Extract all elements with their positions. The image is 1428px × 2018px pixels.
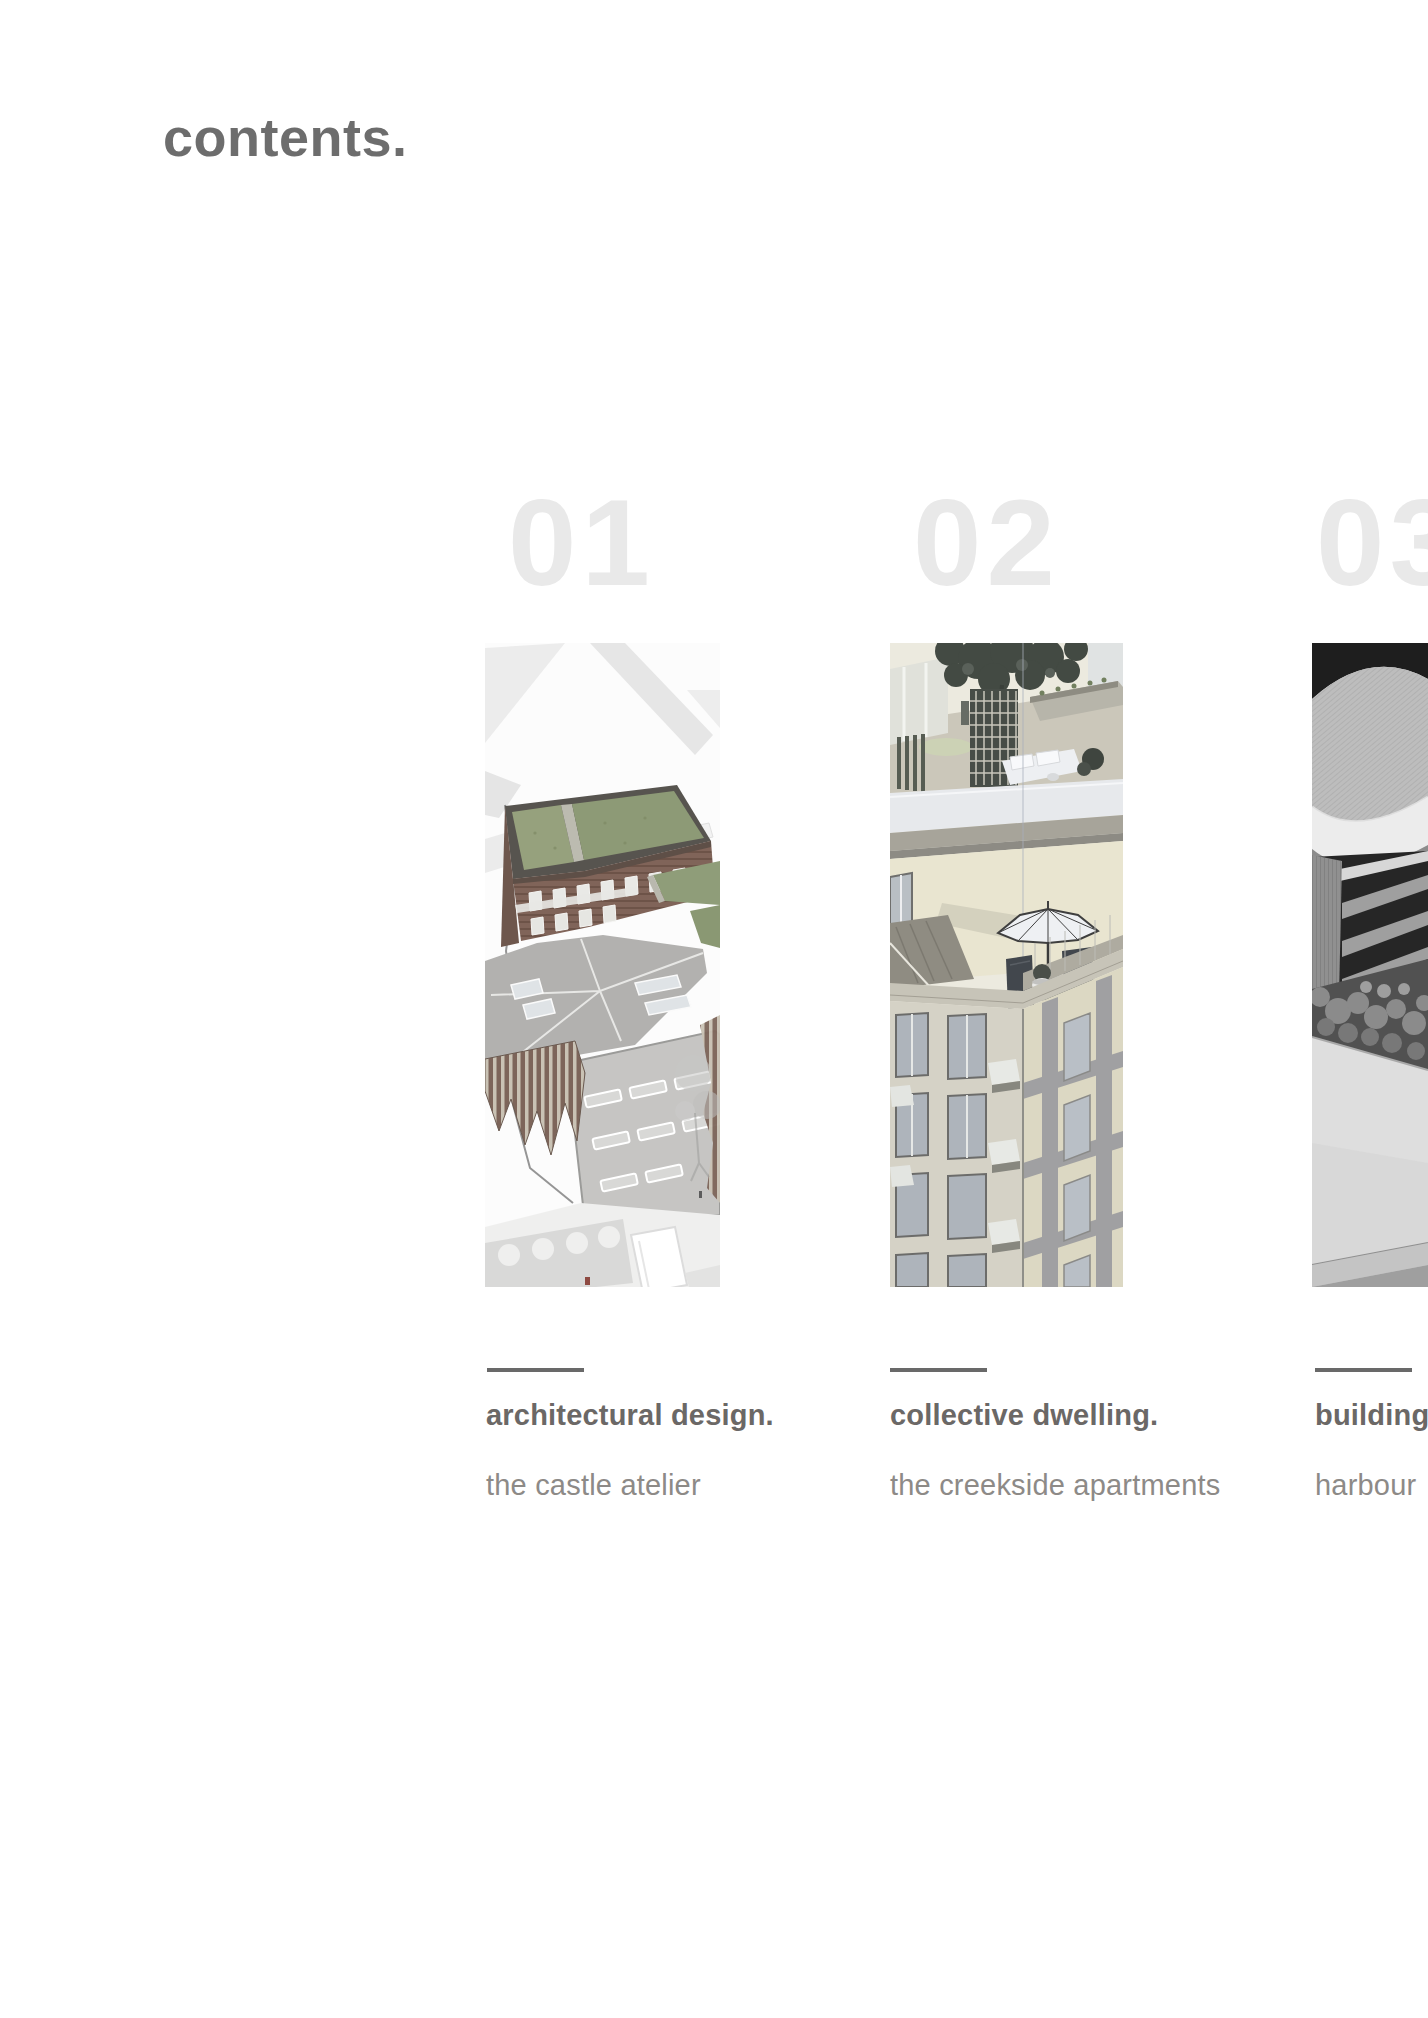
project-subtitle: the castle atelier (486, 1469, 701, 1502)
section-number-03: 03 (1316, 481, 1428, 604)
page-title: contents. (163, 110, 408, 164)
castle-atelier-render-image (485, 643, 720, 1287)
project-thumbnail-2 (890, 643, 1123, 1287)
project-title: building (1315, 1399, 1428, 1432)
harbour-model-photo-image (1312, 643, 1428, 1287)
project-title: collective dwelling. (890, 1399, 1158, 1432)
divider-line (1315, 1368, 1412, 1372)
section-number-01: 01 (508, 481, 655, 604)
section-number-02: 02 (913, 481, 1060, 604)
divider-line (487, 1368, 584, 1372)
creekside-apartments-render-image (890, 643, 1123, 1287)
divider-line (890, 1368, 987, 1372)
project-title: architectural design. (486, 1399, 774, 1432)
project-thumbnail-3 (1312, 643, 1428, 1287)
project-thumbnail-1 (485, 643, 720, 1287)
project-subtitle: the creekside apartments (890, 1469, 1220, 1502)
project-subtitle: harbour (1315, 1469, 1416, 1502)
